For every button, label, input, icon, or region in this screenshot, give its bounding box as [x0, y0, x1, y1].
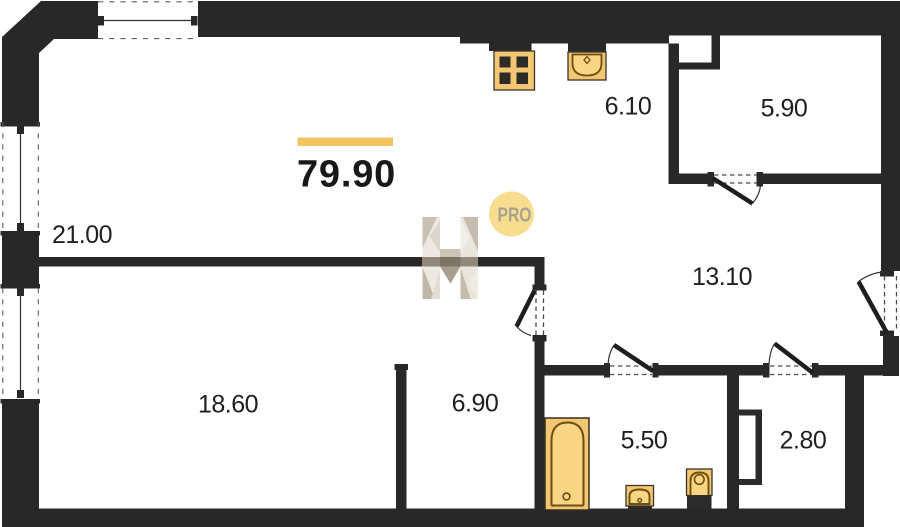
svg-text:21.00: 21.00	[52, 221, 112, 249]
svg-text:5.50: 5.50	[621, 427, 668, 455]
svg-text:79.90: 79.90	[297, 154, 396, 196]
svg-text:6.10: 6.10	[605, 93, 652, 121]
svg-text:5.90: 5.90	[761, 95, 808, 123]
svg-text:18.60: 18.60	[198, 391, 258, 419]
svg-text:6.90: 6.90	[452, 390, 499, 418]
svg-text:13.10: 13.10	[692, 263, 752, 291]
svg-text:PRO: PRO	[498, 205, 532, 227]
svg-text:2.80: 2.80	[780, 427, 827, 455]
